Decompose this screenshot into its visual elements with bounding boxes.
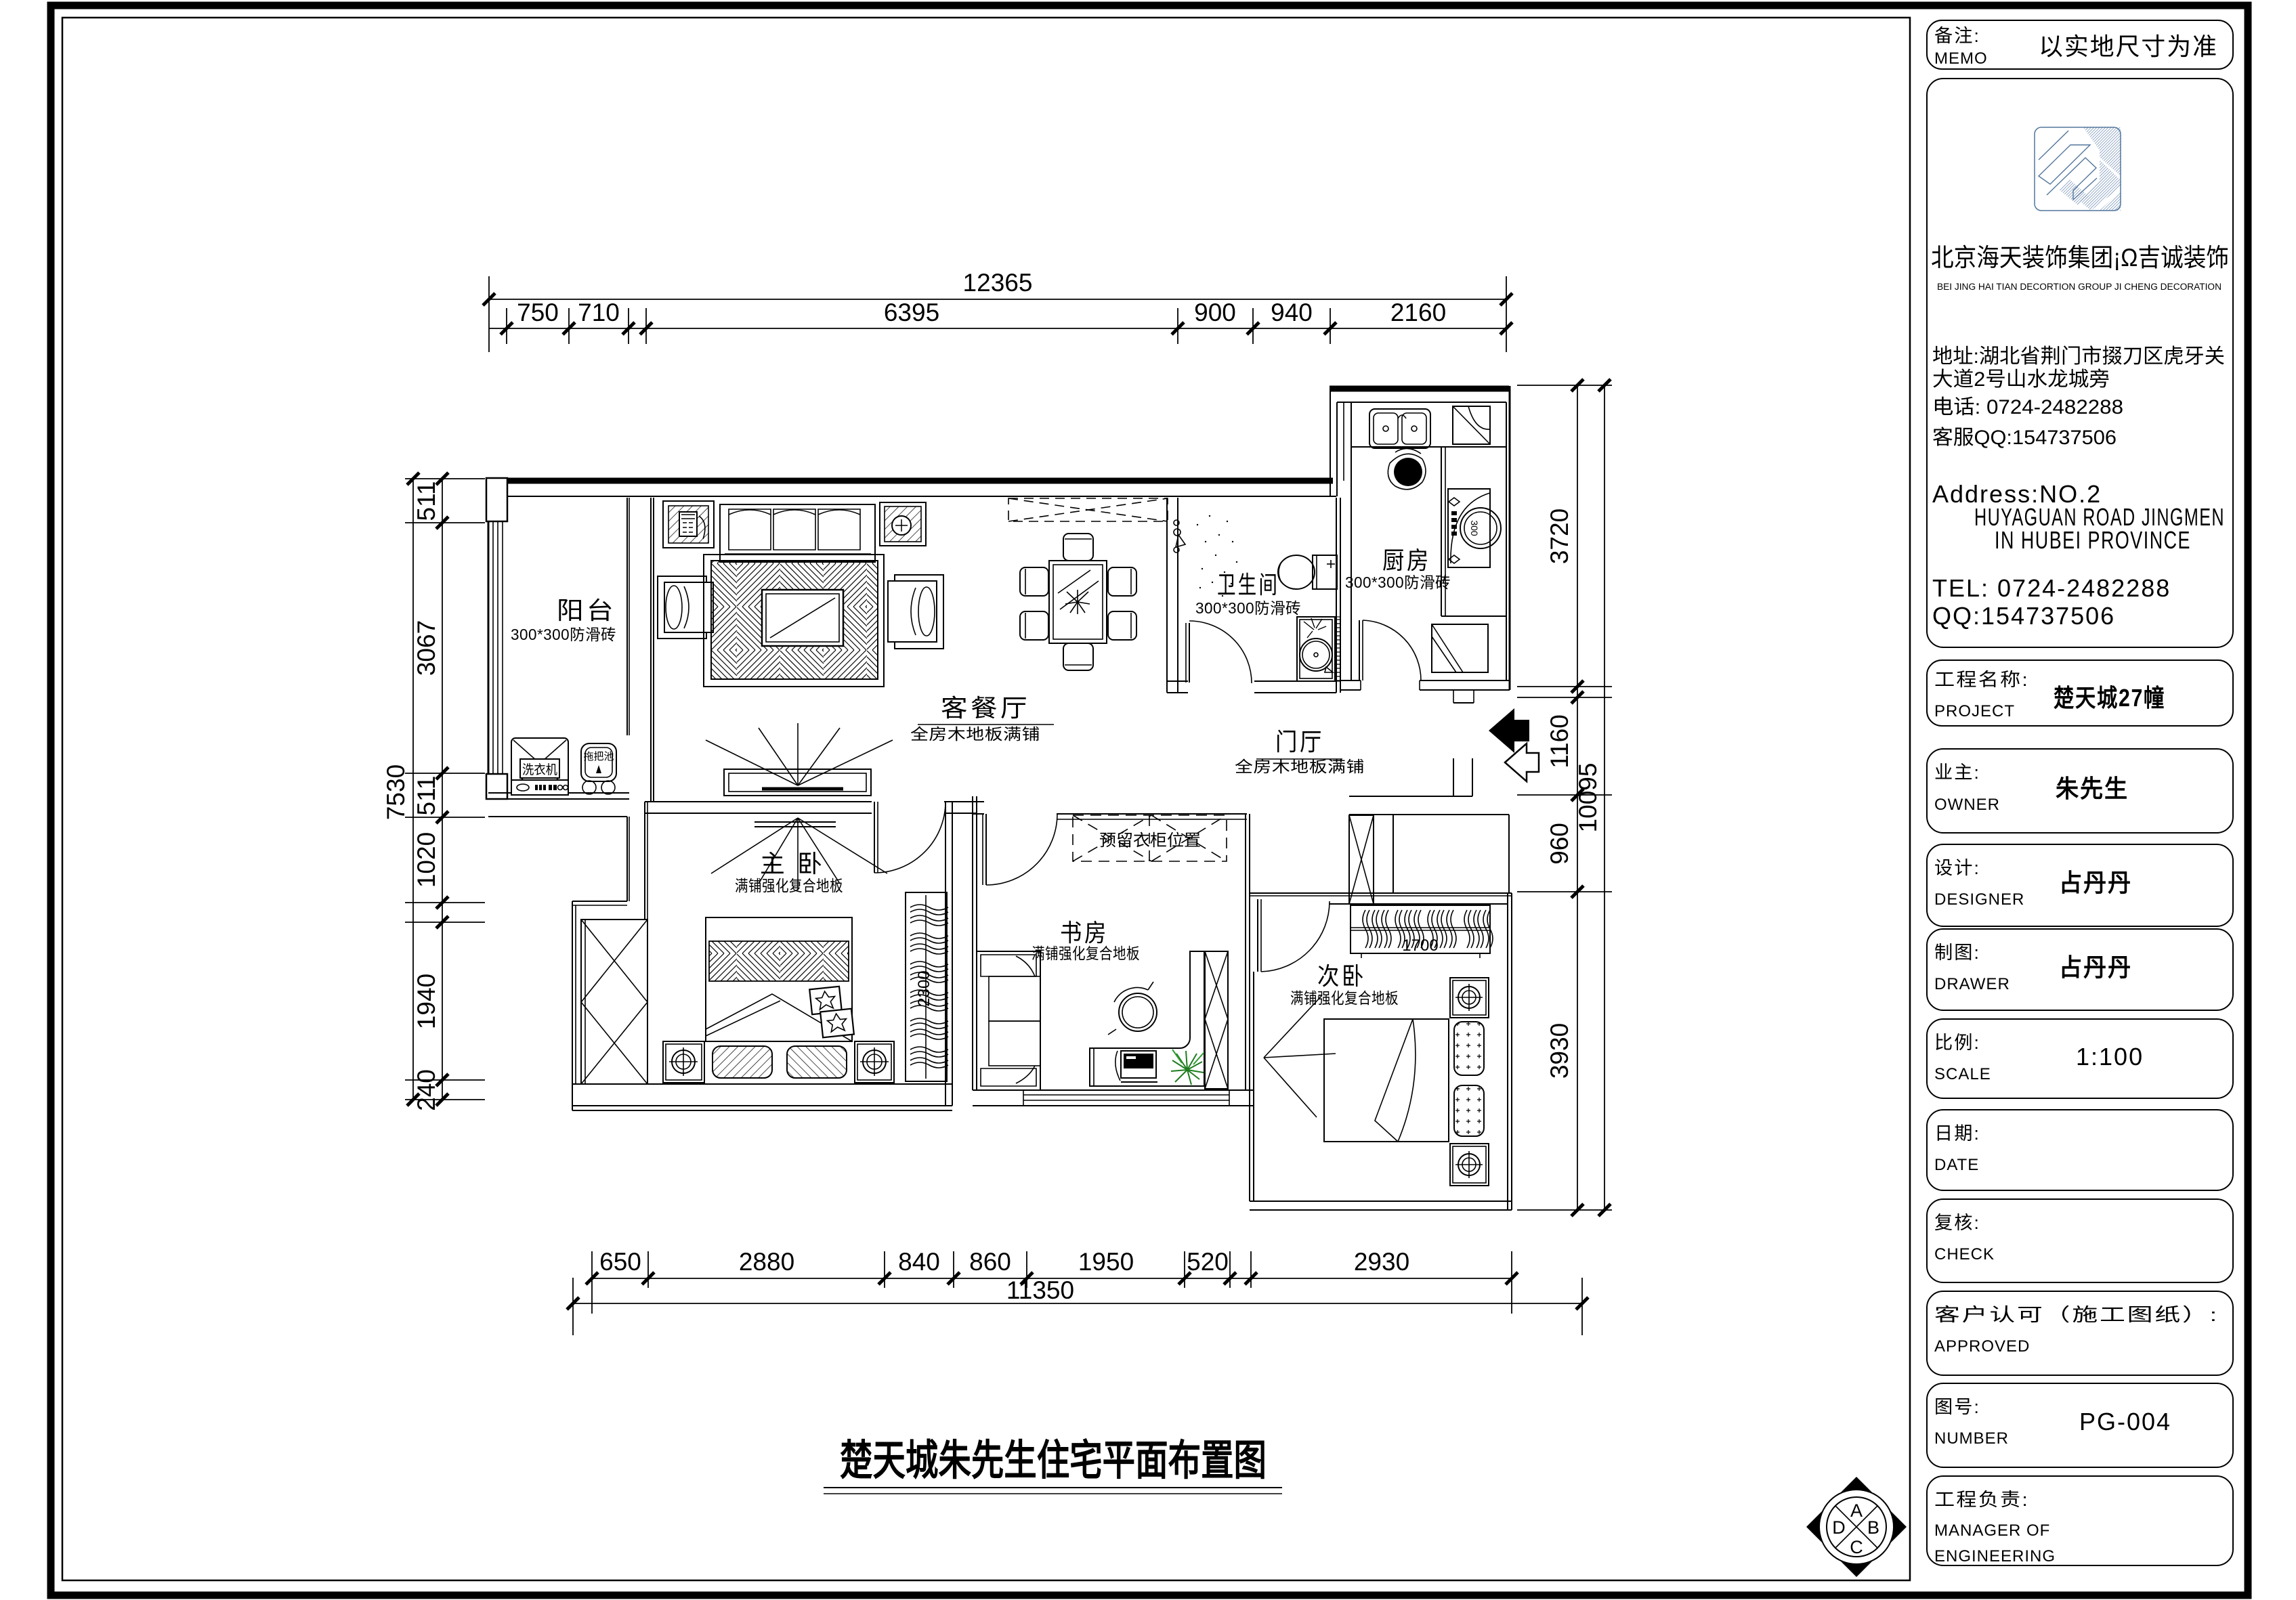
svg-text:朱先生: 朱先生 bbox=[2056, 775, 2129, 802]
svg-text:QQ:154737506: QQ:154737506 bbox=[1932, 602, 2115, 630]
svg-text:1950: 1950 bbox=[1078, 1248, 1134, 1276]
svg-text:厨房: 厨房 bbox=[1382, 546, 1431, 574]
svg-text:960: 960 bbox=[1546, 823, 1573, 865]
svg-text:预留衣柜位置: 预留衣柜位置 bbox=[1099, 831, 1201, 850]
svg-text:PROJECT: PROJECT bbox=[1934, 702, 2015, 720]
svg-text:工程负责:: 工程负责: bbox=[1934, 1490, 2029, 1510]
svg-text:洗衣机: 洗衣机 bbox=[522, 762, 557, 777]
svg-text:2160: 2160 bbox=[1390, 299, 1446, 326]
svg-text:300*300防滑砖: 300*300防滑砖 bbox=[511, 626, 616, 643]
svg-text:MANAGER OF: MANAGER OF bbox=[1934, 1521, 2050, 1540]
svg-text:DRAWER: DRAWER bbox=[1934, 975, 2010, 993]
svg-text:1940: 1940 bbox=[412, 974, 440, 1029]
svg-text:11350: 11350 bbox=[1006, 1276, 1074, 1304]
svg-text:D: D bbox=[1832, 1517, 1846, 1538]
svg-text:2930: 2930 bbox=[1354, 1248, 1409, 1276]
svg-text:图号:: 图号: bbox=[1934, 1397, 1980, 1417]
svg-text:300: 300 bbox=[1469, 520, 1480, 536]
svg-text:12365: 12365 bbox=[963, 269, 1033, 297]
svg-text:PG-004: PG-004 bbox=[2079, 1408, 2171, 1435]
svg-text:511: 511 bbox=[412, 481, 440, 521]
svg-text:1160: 1160 bbox=[1546, 714, 1573, 769]
svg-text:SCALE: SCALE bbox=[1934, 1065, 1991, 1083]
svg-text:300*300防滑砖: 300*300防滑砖 bbox=[1195, 599, 1301, 617]
svg-text:1:100: 1:100 bbox=[2076, 1043, 2144, 1071]
svg-text:阳台: 阳台 bbox=[557, 597, 616, 624]
svg-text:750: 750 bbox=[517, 299, 559, 326]
svg-text:840: 840 bbox=[898, 1248, 940, 1276]
svg-text:OWNER: OWNER bbox=[1934, 796, 2000, 814]
svg-text:240: 240 bbox=[412, 1069, 440, 1111]
svg-text:客餐厅: 客餐厅 bbox=[941, 694, 1030, 722]
svg-text:10095: 10095 bbox=[1574, 763, 1602, 833]
svg-text:满铺强化复合地板: 满铺强化复合地板 bbox=[735, 877, 843, 894]
svg-text:业主:: 业主: bbox=[1934, 762, 1980, 783]
svg-text:2880: 2880 bbox=[739, 1248, 794, 1276]
svg-text:DATE: DATE bbox=[1934, 1156, 1979, 1174]
svg-text:1700: 1700 bbox=[1402, 936, 1438, 955]
svg-text:BEI JING HAI TIAN DECORTION GR: BEI JING HAI TIAN DECORTION GROUP JI CHE… bbox=[1937, 282, 2221, 292]
svg-text:满铺强化复合地板: 满铺强化复合地板 bbox=[1032, 945, 1140, 962]
svg-text:复核:: 复核: bbox=[1934, 1213, 1980, 1233]
svg-text:客户认可（施工图纸）:: 客户认可（施工图纸）: bbox=[1934, 1305, 2219, 1325]
svg-text:A: A bbox=[1850, 1500, 1863, 1521]
svg-text:拖把池: 拖把池 bbox=[583, 751, 614, 762]
svg-text:2300: 2300 bbox=[915, 970, 933, 1006]
svg-text:楚天城27幢: 楚天城27幢 bbox=[2054, 684, 2165, 712]
svg-text:3720: 3720 bbox=[1546, 509, 1573, 564]
svg-text:工程名称:: 工程名称: bbox=[1934, 670, 2029, 690]
svg-text:楚天城朱先生住宅平面布置图: 楚天城朱先生住宅平面布置图 bbox=[840, 1437, 1267, 1484]
svg-text:占丹丹: 占丹丹 bbox=[2059, 953, 2132, 981]
svg-text:1020: 1020 bbox=[412, 832, 440, 888]
svg-text:门厅: 门厅 bbox=[1275, 728, 1324, 756]
svg-text:设计:: 设计: bbox=[1934, 858, 1980, 878]
svg-text:满铺强化复合地板: 满铺强化复合地板 bbox=[1290, 989, 1399, 1007]
svg-text:日期:: 日期: bbox=[1934, 1123, 1980, 1144]
svg-text:650: 650 bbox=[599, 1248, 641, 1276]
svg-text:520: 520 bbox=[1187, 1248, 1229, 1276]
svg-text:TEL: 0724-2482288: TEL: 0724-2482288 bbox=[1932, 574, 2171, 602]
svg-text:客服QQ:154737506: 客服QQ:154737506 bbox=[1932, 427, 2117, 449]
svg-text:MEMO: MEMO bbox=[1934, 49, 1988, 68]
svg-text:3930: 3930 bbox=[1546, 1023, 1573, 1079]
svg-text:制图:: 制图: bbox=[1934, 943, 1980, 963]
svg-text:北京海天装饰集团¡Ω吉诚装饰: 北京海天装饰集团¡Ω吉诚装饰 bbox=[1931, 244, 2229, 272]
svg-text:860: 860 bbox=[969, 1248, 1011, 1276]
svg-text:书房: 书房 bbox=[1060, 919, 1109, 947]
svg-text:次卧: 次卧 bbox=[1317, 962, 1366, 990]
svg-text:大道2号山水龙城旁: 大道2号山水龙城旁 bbox=[1932, 368, 2110, 391]
svg-text:940: 940 bbox=[1271, 299, 1313, 326]
svg-text:主 卧: 主 卧 bbox=[760, 850, 825, 878]
svg-text:IN HUBEI PROVINCE: IN HUBEI PROVINCE bbox=[1995, 526, 2191, 554]
svg-text:以实地尺寸为准: 以实地尺寸为准 bbox=[2039, 33, 2218, 60]
svg-text:C: C bbox=[1850, 1537, 1863, 1557]
svg-text:DESIGNER: DESIGNER bbox=[1934, 890, 2024, 909]
svg-text:6395: 6395 bbox=[884, 299, 939, 326]
svg-text:比例:: 比例: bbox=[1934, 1033, 1980, 1053]
svg-text:CHECK: CHECK bbox=[1934, 1245, 1995, 1263]
svg-text:地址:湖北省荆门市掇刀区虎牙关: 地址:湖北省荆门市掇刀区虎牙关 bbox=[1932, 345, 2225, 368]
svg-text:900: 900 bbox=[1194, 299, 1236, 326]
svg-text:APPROVED: APPROVED bbox=[1934, 1337, 2030, 1356]
svg-text:3067: 3067 bbox=[412, 620, 440, 676]
svg-text:511: 511 bbox=[412, 776, 440, 816]
svg-text:备注:: 备注: bbox=[1934, 26, 1980, 46]
svg-text:全房木地板满铺: 全房木地板满铺 bbox=[910, 725, 1040, 743]
svg-text:电话: 0724-2482288: 电话: 0724-2482288 bbox=[1932, 396, 2123, 418]
svg-text:全房木地板满铺: 全房木地板满铺 bbox=[1235, 758, 1365, 775]
svg-text:卫生间: 卫生间 bbox=[1217, 571, 1279, 599]
svg-text:ENGINEERING: ENGINEERING bbox=[1934, 1547, 2056, 1565]
svg-text:300*300防滑砖: 300*300防滑砖 bbox=[1345, 574, 1451, 591]
svg-text:占丹丹: 占丹丹 bbox=[2059, 869, 2132, 896]
svg-text:710: 710 bbox=[578, 299, 620, 326]
svg-text:B: B bbox=[1867, 1517, 1879, 1538]
svg-text:NUMBER: NUMBER bbox=[1934, 1429, 2009, 1448]
